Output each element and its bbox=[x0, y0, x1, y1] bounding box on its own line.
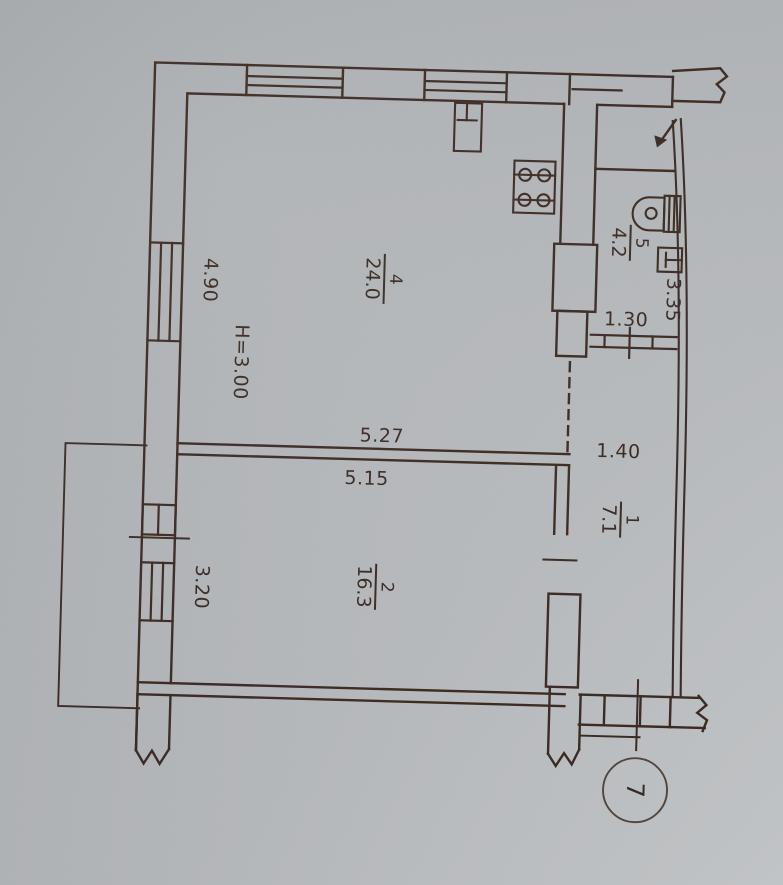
bathroom-top-wall bbox=[595, 169, 673, 171]
room-area: 7.1 bbox=[597, 504, 620, 535]
room-number: 5 bbox=[631, 237, 651, 248]
dimension-tick bbox=[543, 559, 576, 560]
wall-cap bbox=[246, 65, 247, 95]
break-line bbox=[548, 749, 579, 767]
duct-block bbox=[556, 311, 587, 357]
bottom-wall bbox=[138, 682, 565, 706]
room-label-living: 4 24.0 bbox=[361, 254, 406, 303]
room2-right-wall bbox=[540, 466, 584, 688]
dim-wall-bottom: 5.15 bbox=[344, 467, 389, 490]
svg-text:3.20: 3.20 bbox=[190, 565, 213, 610]
dim-room4-width: 4.90 bbox=[198, 258, 221, 303]
wall-cap bbox=[569, 74, 570, 104]
balcony-outline bbox=[58, 443, 146, 708]
window-symbol-top-left bbox=[247, 76, 343, 88]
dimension-tick bbox=[629, 328, 630, 358]
room-number: 2 bbox=[376, 581, 396, 592]
top-wall-inner-right bbox=[597, 105, 672, 107]
ventilation-shaft bbox=[552, 244, 597, 312]
corridor-bottom-wall bbox=[578, 679, 708, 753]
outer-boundary-line bbox=[136, 62, 673, 764]
opening-dashed-line bbox=[567, 362, 570, 454]
door-frame-block bbox=[546, 594, 581, 688]
sheet-number: 7 bbox=[621, 782, 649, 798]
floor-plan-drawing: 4 24.0 5 4.2 1 7.1 2 16.3 4.90 H=3.00 3.… bbox=[0, 0, 783, 885]
window-symbol-entrance bbox=[573, 89, 622, 90]
wall-cap bbox=[506, 72, 507, 102]
wall-cap bbox=[342, 68, 343, 98]
corridor-curved-wall bbox=[657, 119, 697, 697]
svg-text:4.90: 4.90 bbox=[198, 258, 221, 303]
corridor-edge-line bbox=[580, 736, 640, 738]
axis-tick bbox=[636, 680, 638, 750]
wall-bath-door bbox=[590, 327, 677, 359]
wall-cap bbox=[424, 70, 425, 100]
dim-ceiling-height: H=3.00 bbox=[229, 324, 253, 400]
wall-break-top-right bbox=[672, 67, 727, 102]
dim-hall-width: 1.40 bbox=[596, 440, 641, 463]
stove-icon bbox=[513, 161, 555, 214]
room-area: 16.3 bbox=[352, 565, 375, 608]
kitchen-sink-icon bbox=[454, 103, 482, 152]
room-area: 4.2 bbox=[607, 227, 630, 258]
wall-stub-left bbox=[136, 694, 171, 764]
break-line bbox=[136, 748, 169, 764]
wall-cap bbox=[672, 77, 673, 107]
outer-walls bbox=[136, 62, 673, 764]
room-label-room2: 2 16.3 bbox=[352, 564, 397, 609]
room-label-hall: 1 7.1 bbox=[597, 502, 642, 537]
room-number: 1 bbox=[621, 514, 641, 525]
svg-text:3.35: 3.35 bbox=[661, 278, 684, 323]
dim-room2-width: 3.20 bbox=[190, 565, 213, 610]
room-area: 24.0 bbox=[361, 257, 384, 300]
sheet-number-bubble: 7 bbox=[602, 757, 668, 823]
window-symbol-left-small bbox=[142, 504, 176, 535]
window-symbol-left-lower bbox=[140, 562, 175, 621]
wall-stub-right bbox=[548, 687, 581, 767]
dim-bath-door: 1.30 bbox=[604, 308, 649, 331]
window-symbol-top-right bbox=[424, 81, 506, 92]
dim-bath-length: 3.35 bbox=[661, 278, 684, 323]
dimension-tick bbox=[130, 537, 189, 539]
scanned-floor-plan-photo: 4 24.0 5 4.2 1 7.1 2 16.3 4.90 H=3.00 3.… bbox=[0, 0, 783, 885]
break-line bbox=[697, 696, 708, 731]
svg-text:H=3.00: H=3.00 bbox=[229, 324, 253, 400]
room-number: 4 bbox=[385, 274, 405, 285]
interior-wall-room4-strip bbox=[548, 104, 601, 455]
toilet-icon bbox=[632, 195, 680, 232]
dim-wall-top: 5.27 bbox=[359, 424, 404, 447]
window-symbol-left-upper bbox=[147, 242, 183, 341]
